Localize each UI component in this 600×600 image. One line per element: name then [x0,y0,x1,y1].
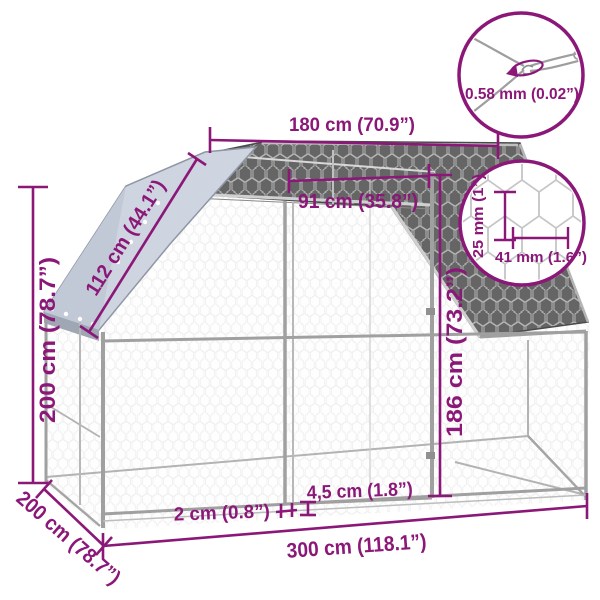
dim-top-width-label: 180 cm (70.9”) [289,114,415,136]
dim-height-label: 200 cm (78.7”) [35,257,60,423]
mesh-cell-width-label: 41 mm (1.6”) [495,249,587,266]
dim-door-width-label: 91 cm (35.8”) [298,191,418,213]
diagram-canvas: 180 cm (70.9”) 91 cm (35.8”) 112 cm (44.… [0,0,600,600]
cage-dimension-diagram: 180 cm (70.9”) 91 cm (35.8”) 112 cm (44.… [0,0,600,600]
door-hinge [426,452,435,459]
dim-frame-tube-label: 2 cm (0.8”) [173,501,270,525]
door-hinge [426,308,435,315]
dim-door-height-label: 186 cm (73.2”) [442,267,467,437]
dim-ground-clearance-label: 4,5 cm (1.8”) [306,479,413,504]
wire-thickness-label: 0.58 mm (0.02”) [465,86,579,103]
mesh-cell-height-label: 25 mm (1”) [470,174,487,258]
detail-circle-wire: 0.58 mm (0.02”) [458,13,584,137]
